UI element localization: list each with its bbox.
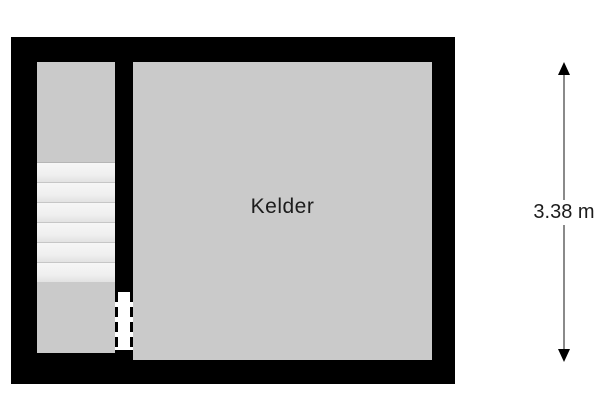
staircase bbox=[37, 162, 115, 282]
dimension-arrow-bottom-icon bbox=[558, 349, 570, 362]
room-label-kelder: Kelder bbox=[251, 195, 315, 219]
stair-tread bbox=[37, 162, 115, 182]
stair-tread bbox=[37, 242, 115, 262]
stair-tread bbox=[37, 182, 115, 202]
floorplan-outer-wall: Kelder bbox=[11, 37, 455, 384]
stair-tread bbox=[37, 202, 115, 222]
stair-tread bbox=[37, 222, 115, 242]
floorplan-canvas: Kelder 3.38 m bbox=[0, 0, 600, 400]
dimension-arrow-top-icon bbox=[558, 62, 570, 75]
door-opening bbox=[115, 292, 133, 350]
room-kelder: Kelder bbox=[133, 62, 432, 360]
room-left-lower bbox=[37, 282, 115, 353]
dimension-label: 3.38 m bbox=[531, 200, 596, 225]
stair-tread bbox=[37, 262, 115, 282]
door-dashed-line-left-icon bbox=[115, 292, 118, 350]
room-left-upper bbox=[37, 62, 115, 162]
door-dashed-line-right-icon bbox=[130, 292, 133, 350]
dimension-indicator: 3.38 m bbox=[534, 62, 594, 362]
